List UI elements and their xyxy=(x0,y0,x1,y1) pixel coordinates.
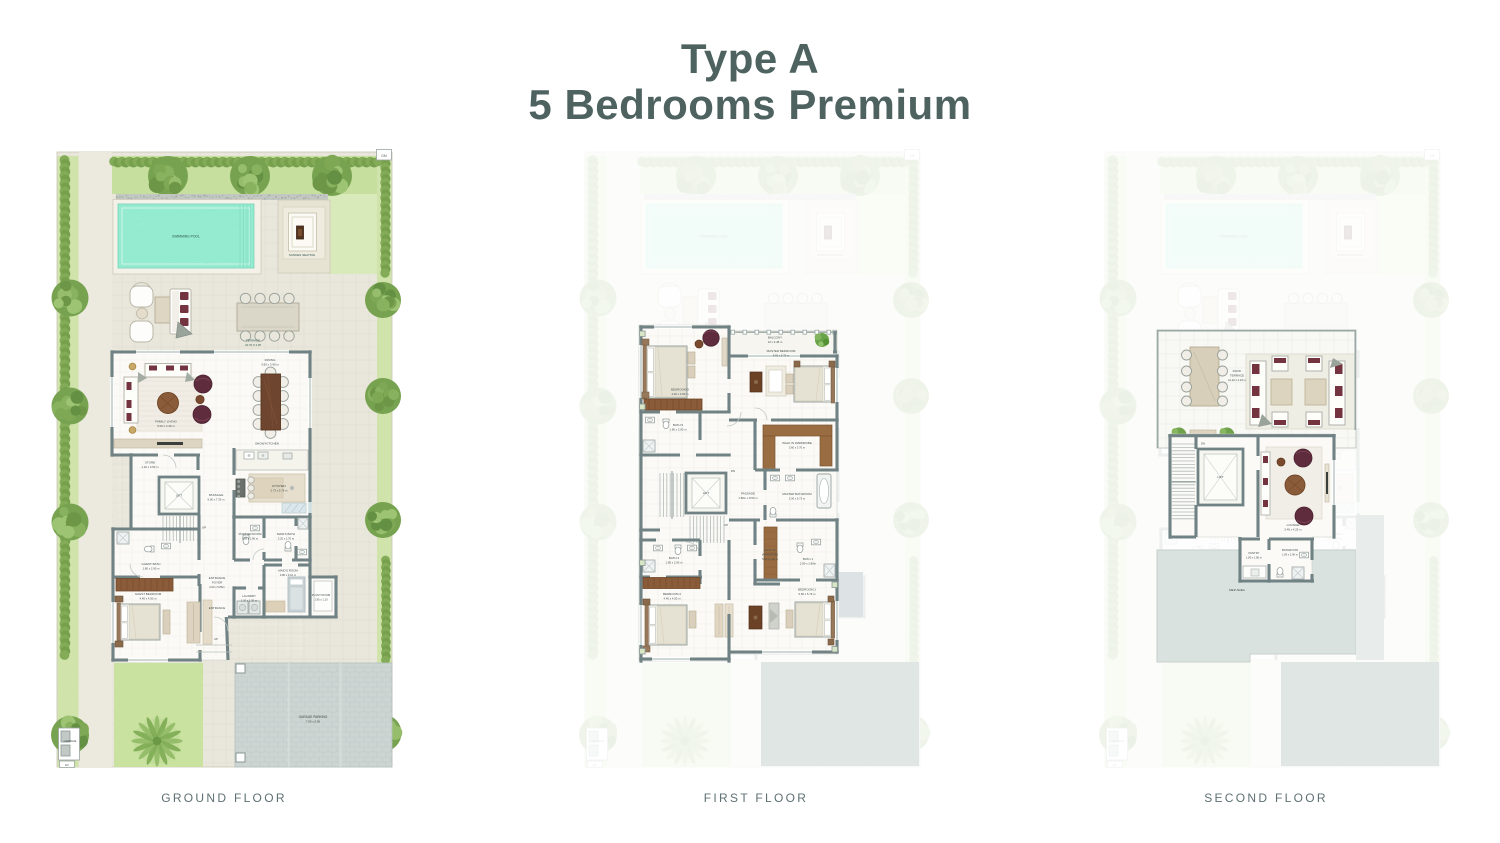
svg-text:ROOF: ROOF xyxy=(1233,369,1242,373)
svg-text:BALCONY: BALCONY xyxy=(768,336,782,340)
svg-text:PASSAGE: PASSAGE xyxy=(741,492,755,496)
svg-text:DN: DN xyxy=(1201,442,1205,446)
svg-text:1.80 x 2.90 m: 1.80 x 2.90 m xyxy=(1282,553,1298,557)
svg-text:PANTRY: PANTRY xyxy=(1248,551,1259,555)
svg-text:4.40 x 4.50 m: 4.40 x 4.50 m xyxy=(672,392,690,396)
svg-text:MEP AREA: MEP AREA xyxy=(1229,588,1246,592)
svg-text:5.60 x 5.79 m: 5.60 x 5.79 m xyxy=(799,592,817,596)
svg-text:BEDROOM 1: BEDROOM 1 xyxy=(798,588,816,592)
svg-text:UP: UP xyxy=(724,523,728,527)
svg-text:1.80m x 8.50 m: 1.80m x 8.50 m xyxy=(738,496,758,500)
svg-text:BATH 5: BATH 5 xyxy=(673,423,684,427)
svg-text:WARDROBE: WARDROBE xyxy=(762,553,779,557)
svg-text:5.00 x 1.80 m: 5.00 x 1.80 m xyxy=(762,557,778,561)
svg-text:MASTER BEDROOM: MASTER BEDROOM xyxy=(767,349,796,353)
svg-text:5.40 x 4.25 m: 5.40 x 4.25 m xyxy=(1285,528,1303,532)
svg-text:1.80 x 1.80 m: 1.80 x 1.80 m xyxy=(1246,556,1262,560)
svg-text:TERRACE: TERRACE xyxy=(1230,374,1244,378)
svg-text:WALK IN: WALK IN xyxy=(764,548,775,552)
svg-text:4.40 x 4.50 m: 4.40 x 4.50 m xyxy=(664,597,682,601)
svg-text:MASTER BATHROOM: MASTER BATHROOM xyxy=(782,492,812,496)
svg-text:13 x 3.48 m: 13 x 3.48 m xyxy=(768,340,783,344)
svg-text:DN: DN xyxy=(731,469,735,473)
svg-text:1.80 x 2.90 m: 1.80 x 2.90 m xyxy=(666,561,684,565)
svg-text:2.90 x 1.80m: 2.90 x 1.80m xyxy=(800,562,817,566)
svg-text:5.60 x 5.79 m: 5.60 x 5.79 m xyxy=(773,354,790,358)
svg-text:BATH 2: BATH 2 xyxy=(669,556,680,560)
svg-text:LOUNGE: LOUNGE xyxy=(1287,523,1300,527)
svg-text:BATH 1: BATH 1 xyxy=(803,557,814,561)
svg-text:BEDROOM 2: BEDROOM 2 xyxy=(663,592,681,596)
svg-text:2.00 x 5.73 m: 2.00 x 5.73 m xyxy=(789,497,806,501)
svg-text:10.40 x 4.23 m: 10.40 x 4.23 m xyxy=(1228,378,1247,382)
svg-text:LIFT: LIFT xyxy=(703,491,709,495)
svg-text:1.80 x 2.90 m: 1.80 x 2.90 m xyxy=(670,428,688,432)
svg-text:BEDROOM 5: BEDROOM 5 xyxy=(671,388,689,392)
svg-text:3.60 x 3.70 m: 3.60 x 3.70 m xyxy=(789,446,806,450)
svg-text:LIFT: LIFT xyxy=(1217,475,1223,479)
svg-text:BATHROOM: BATHROOM xyxy=(1282,548,1299,552)
svg-text:WALK IN WARDROBE: WALK IN WARDROBE xyxy=(782,441,812,445)
